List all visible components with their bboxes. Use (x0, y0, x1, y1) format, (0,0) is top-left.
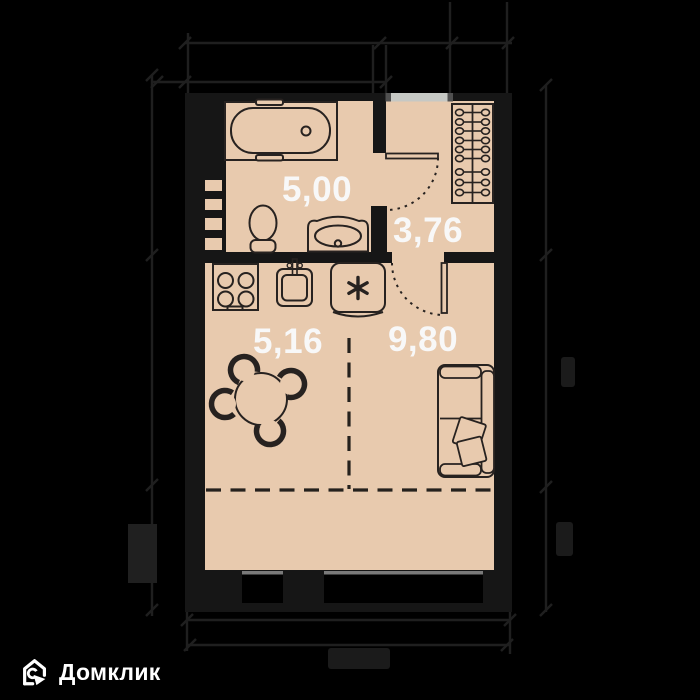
ventilation-shaft-icon (202, 93, 226, 257)
screenshot-root: 5,00 3,76 5,16 9,80 Домклик (0, 0, 700, 700)
washbasin-icon (308, 217, 368, 252)
fridge-icon (331, 263, 385, 317)
entrance-door (386, 93, 454, 102)
domclick-logo: Домклик (19, 655, 161, 689)
exterior-block (128, 524, 157, 583)
logo-text: Домклик (59, 659, 161, 686)
window-icon (242, 571, 483, 603)
domclick-house-icon (19, 656, 51, 688)
toilet-icon (250, 206, 277, 253)
floor (205, 101, 494, 570)
wardrobe-hangers-icon (452, 104, 493, 203)
stove-icon (213, 264, 258, 310)
bathtub-icon (225, 100, 337, 161)
floor-plan-canvas (0, 0, 700, 700)
sofa-bed-icon (438, 365, 494, 477)
